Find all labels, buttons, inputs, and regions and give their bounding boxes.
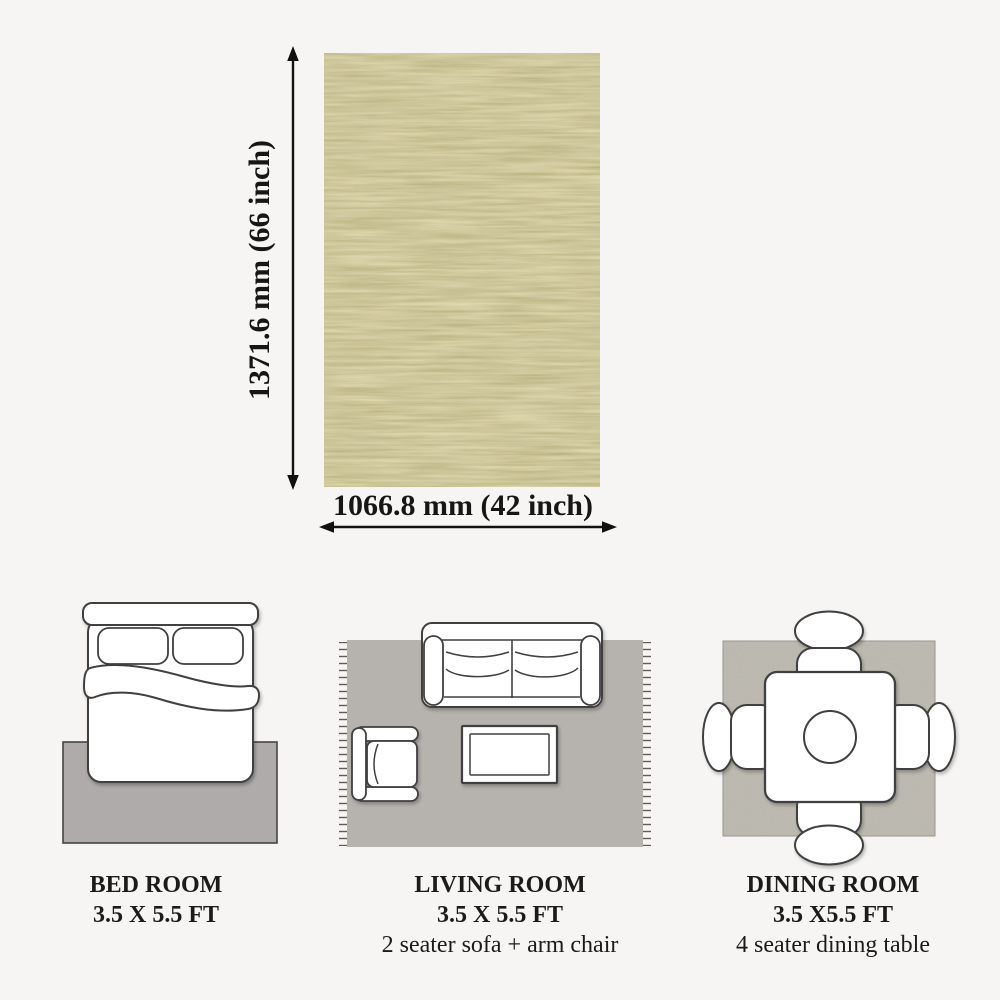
room-name-label: BED ROOM bbox=[6, 870, 306, 900]
diningroom-topview-illustration bbox=[697, 592, 967, 872]
dining-chair-top-backrest bbox=[795, 612, 863, 651]
room-size-label: 3.5 X 5.5 FT bbox=[350, 900, 650, 930]
livingroom-caption: LIVING ROOM 3.5 X 5.5 FT 2 seater sofa +… bbox=[350, 870, 650, 960]
horizontal-dimension-arrow-icon bbox=[318, 518, 618, 536]
bed-headboard bbox=[83, 603, 258, 625]
room-size-label: 3.5 X 5.5 FT bbox=[6, 900, 306, 930]
rug-fringe-left bbox=[339, 642, 347, 846]
dining-chair-bottom-backrest bbox=[795, 826, 863, 865]
room-detail-label: 2 seater sofa + arm chair bbox=[350, 930, 650, 960]
livingroom-topview-illustration bbox=[337, 590, 657, 856]
vertical-dimension-arrow-icon bbox=[284, 45, 302, 491]
sofa-icon bbox=[422, 623, 602, 707]
rug-shade-texture bbox=[324, 53, 600, 487]
bed-icon bbox=[83, 603, 259, 782]
height-dimension-label: 1371.6 mm (66 inch) bbox=[243, 140, 277, 400]
room-size-label: 3.5 X5.5 FT bbox=[683, 900, 983, 930]
product-dimension-infographic: 1371.6 mm (66 inch) 1066.8 mm (42 inch) bbox=[0, 0, 1000, 1000]
rug-product-image bbox=[324, 53, 600, 487]
room-detail-label: 4 seater dining table bbox=[683, 930, 983, 960]
sofa-armrest-right bbox=[581, 636, 600, 705]
pillow-right bbox=[173, 628, 243, 664]
pillow-left bbox=[98, 628, 168, 664]
bedroom-topview-illustration bbox=[55, 595, 285, 851]
rug-texture-graphic bbox=[324, 53, 600, 487]
sofa-armrest-left bbox=[424, 636, 443, 705]
armchair-icon bbox=[352, 727, 418, 801]
bedroom-caption: BED ROOM 3.5 X 5.5 FT bbox=[6, 870, 306, 930]
room-name-label: LIVING ROOM bbox=[350, 870, 650, 900]
height-dimension-label-box: 1371.6 mm (66 inch) bbox=[236, 53, 284, 487]
room-name-label: DINING ROOM bbox=[683, 870, 983, 900]
diningroom-caption: DINING ROOM 3.5 X5.5 FT 4 seater dining … bbox=[683, 870, 983, 960]
coffee-table-icon bbox=[462, 726, 557, 783]
armchair-backrest bbox=[352, 728, 366, 800]
rug-fringe-right bbox=[643, 642, 651, 846]
dining-table-center-circle bbox=[804, 711, 856, 763]
